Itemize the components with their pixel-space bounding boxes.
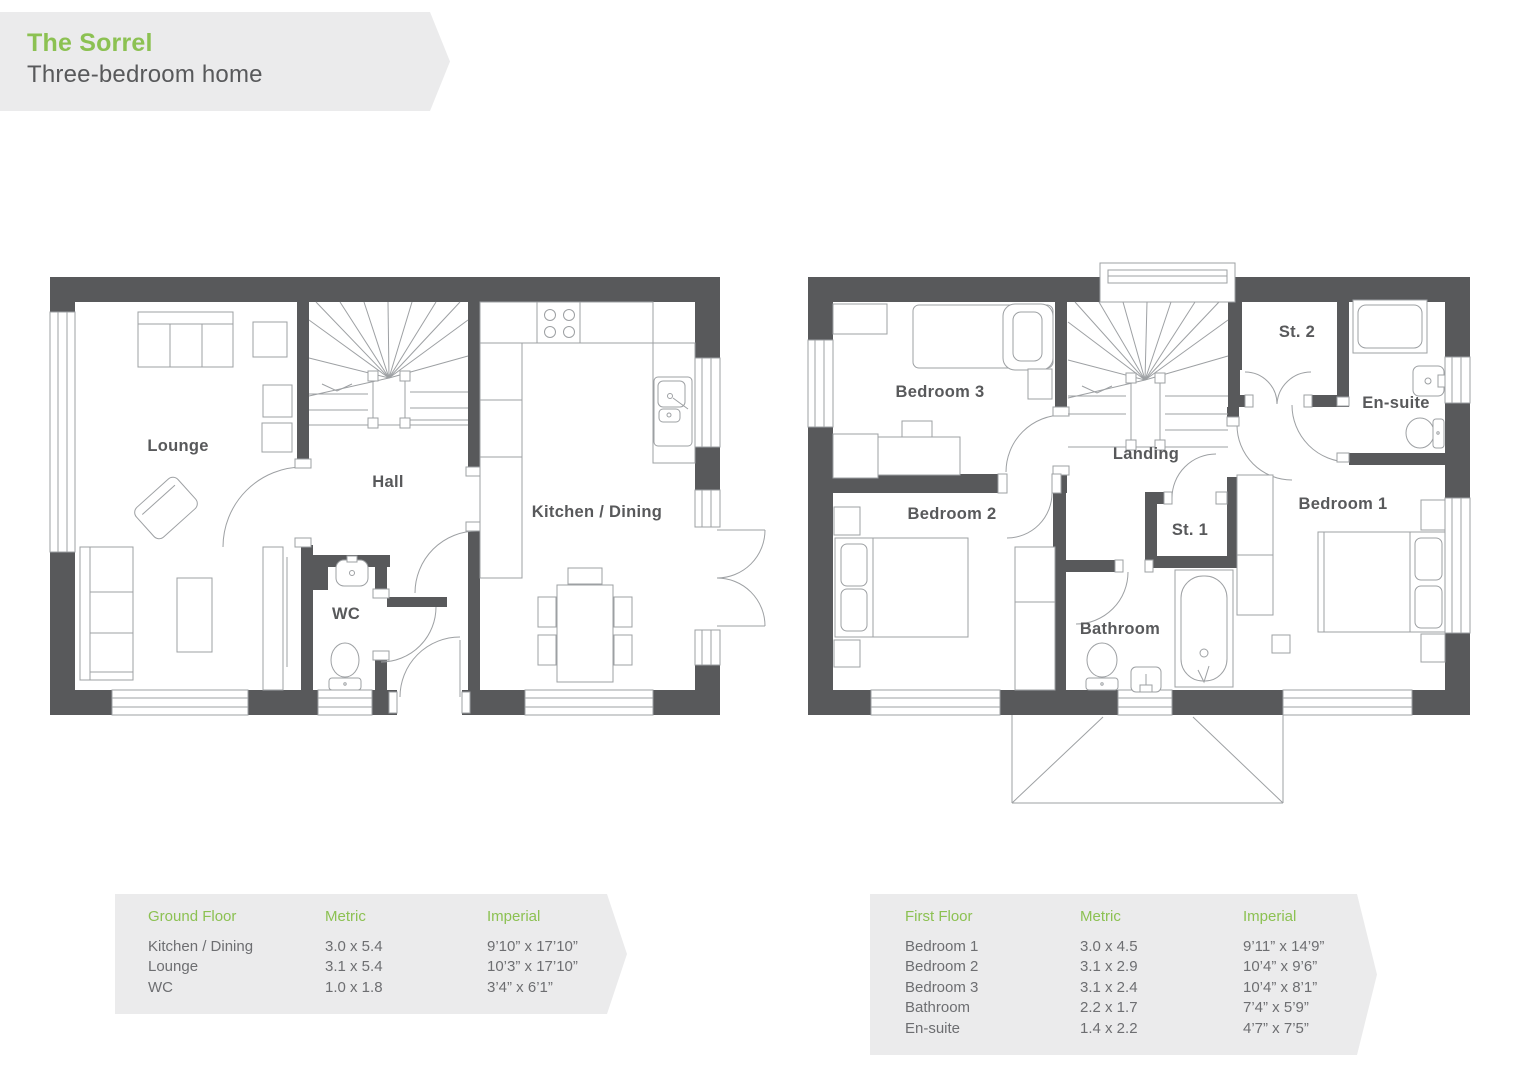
- chair: [614, 635, 632, 665]
- room-label-bedroom3: Bedroom 3: [896, 383, 985, 401]
- bathtub: [1175, 570, 1233, 687]
- imperial-cell: 9’11” x 14’9”: [1243, 937, 1377, 958]
- bedroom3-door-arc: [1006, 415, 1063, 472]
- room-cell: Bedroom 1: [905, 937, 1080, 958]
- hob: [537, 302, 580, 343]
- coffee-table: [177, 578, 212, 652]
- metric-cell: 2.2 x 1.7: [1080, 998, 1243, 1019]
- dining-table: [557, 585, 613, 682]
- metric-cell: 1.4 x 2.2: [1080, 1019, 1243, 1040]
- window: [871, 690, 1000, 715]
- imperial-cell: 7’4” x 5’9”: [1243, 998, 1377, 1019]
- desk: [878, 437, 960, 475]
- imperial-cell: 4’7” x 7’5”: [1243, 1019, 1377, 1040]
- room-cell: Bedroom 2: [905, 957, 1080, 978]
- metric-cell: 3.1 x 2.9: [1080, 957, 1243, 978]
- ensuite-fixtures: [1353, 300, 1445, 448]
- metric-cell: 1.0 x 1.8: [325, 978, 487, 999]
- desk-chair: [902, 421, 932, 438]
- kitchen-unit: [480, 400, 522, 457]
- toilet: [1406, 418, 1444, 448]
- room-label-ensuite: En-suite: [1362, 394, 1430, 412]
- imperial-cell: 10’4” x 8’1”: [1243, 978, 1377, 999]
- table-row: Bathroom 2.2 x 1.7 7’4” x 5’9”: [870, 998, 1377, 1019]
- room-label-bedroom1: Bedroom 1: [1299, 495, 1388, 513]
- metric-cell: 3.1 x 2.4: [1080, 978, 1243, 999]
- window: [112, 690, 248, 715]
- table-title: First Floor: [905, 907, 1080, 928]
- tv-unit: [263, 547, 287, 690]
- metric-header: Metric: [1080, 907, 1243, 928]
- french-door-arc: [717, 578, 765, 626]
- closet: [1015, 547, 1055, 602]
- window: [695, 490, 720, 527]
- window: [1283, 690, 1412, 715]
- window: [525, 690, 653, 715]
- bedroom1-door-arc: [1237, 425, 1292, 480]
- wardrobe: [1237, 475, 1273, 555]
- metric-cell: 3.1 x 5.4: [325, 957, 487, 978]
- room-label-wc: WC: [332, 605, 360, 623]
- toilet: [1086, 643, 1118, 690]
- table-row: Bedroom 1 3.0 x 4.5 9’11” x 14’9”: [870, 937, 1377, 958]
- room-label-lounge: Lounge: [147, 437, 208, 455]
- imperial-cell: 3’4” x 6’1”: [487, 978, 627, 999]
- armchair: [132, 474, 200, 541]
- table-row: WC 1.0 x 1.8 3’4” x 6’1”: [115, 978, 627, 999]
- room-cell: En-suite: [905, 1019, 1080, 1040]
- wardrobe: [1237, 555, 1273, 615]
- single-bed: [913, 304, 1053, 370]
- stair-dormer-window: [1100, 263, 1235, 302]
- bathroom-door-arc: [1076, 572, 1128, 624]
- double-bed: [1318, 532, 1445, 632]
- room-cell: Lounge: [148, 957, 325, 978]
- toilet: [329, 643, 361, 690]
- window: [1445, 357, 1470, 403]
- metric-header: Metric: [325, 907, 487, 928]
- imperial-cell: 9’10” x 17’10”: [487, 937, 627, 958]
- bedside-table: [834, 507, 860, 535]
- ground-floor-stairs: [309, 302, 468, 428]
- window: [1118, 690, 1172, 715]
- room-cell: Kitchen / Dining: [148, 937, 325, 958]
- window: [50, 312, 75, 552]
- front-door-arc: [400, 637, 460, 697]
- window: [1445, 498, 1470, 633]
- sink: [336, 556, 368, 586]
- imperial-header: Imperial: [487, 907, 627, 928]
- roof-outline: [1012, 715, 1283, 803]
- ground-floor-plan: Lounge Hall Kitchen / Dining WC: [50, 277, 765, 715]
- room-cell: Bedroom 3: [905, 978, 1080, 999]
- table-row: Bedroom 2 3.1 x 2.9 10’4” x 9’6”: [870, 957, 1377, 978]
- bedroom2-door-arc: [1007, 493, 1052, 538]
- table-row: Lounge 3.1 x 5.4 10’3” x 17’10”: [115, 957, 627, 978]
- lounge-furniture: [80, 312, 292, 690]
- bedside-table: [834, 640, 860, 667]
- imperial-cell: 10’4” x 9’6”: [1243, 957, 1377, 978]
- bedroom2-furniture: [834, 507, 1055, 690]
- chair: [568, 568, 602, 584]
- room-label-kitchen-dining: Kitchen / Dining: [532, 503, 662, 521]
- room-cell: Bathroom: [905, 998, 1080, 1019]
- chair: [614, 597, 632, 627]
- wardrobe: [1015, 602, 1055, 690]
- side-table: [263, 385, 292, 417]
- kitchen-sink: [654, 377, 692, 446]
- kitchen-fittings: [480, 302, 695, 682]
- side-table: [253, 322, 287, 357]
- table-header-row: Ground Floor Metric Imperial: [115, 907, 627, 928]
- window: [695, 358, 720, 447]
- window: [695, 630, 720, 665]
- table-title: Ground Floor: [148, 907, 325, 928]
- room-label-st2: St. 2: [1279, 323, 1315, 341]
- table-row: En-suite 1.4 x 2.2 4’7” x 7’5”: [870, 1019, 1377, 1040]
- room-cell: WC: [148, 978, 325, 999]
- room-label-st1: St. 1: [1172, 521, 1208, 539]
- bedside-table: [1421, 634, 1445, 662]
- cabinet: [833, 304, 887, 334]
- kitchen-unit: [480, 457, 522, 578]
- chair: [538, 597, 556, 627]
- imperial-header: Imperial: [1243, 907, 1377, 928]
- kitchen-unit: [480, 343, 522, 400]
- ground-floor-table: Ground Floor Metric Imperial Kitchen / D…: [115, 894, 627, 1014]
- sink: [1413, 366, 1445, 396]
- first-floor-table: First Floor Metric Imperial Bedroom 1 3.…: [870, 894, 1377, 1055]
- room-label-landing: Landing: [1113, 445, 1179, 463]
- table-row: Kitchen / Dining 3.0 x 5.4 9’10” x 17’10…: [115, 937, 627, 958]
- sink: [1131, 667, 1161, 692]
- side-table: [262, 423, 292, 452]
- chair: [538, 635, 556, 665]
- table-header-row: First Floor Metric Imperial: [870, 907, 1377, 928]
- sofa: [80, 547, 133, 680]
- bedside-table: [1421, 500, 1445, 530]
- wc-fixtures: [329, 556, 368, 690]
- double-bed: [835, 538, 968, 637]
- lounge-door-arc: [223, 467, 303, 547]
- sofa: [138, 312, 233, 367]
- metric-cell: 3.0 x 5.4: [325, 937, 487, 958]
- imperial-cell: 10’3” x 17’10”: [487, 957, 627, 978]
- table-row: Bedroom 3 3.1 x 2.4 10’4” x 8’1”: [870, 978, 1377, 999]
- first-floor-stairs: [1068, 302, 1228, 450]
- metric-cell: 3.0 x 4.5: [1080, 937, 1243, 958]
- dining-set: [538, 568, 632, 682]
- first-floor-plan: Bedroom 3 Bedroom 2 Landing St. 1 St. 2 …: [808, 263, 1470, 803]
- kitchen-door-arc: [415, 531, 477, 593]
- room-label-bathroom: Bathroom: [1080, 620, 1160, 638]
- cabinet: [833, 434, 878, 478]
- room-label-hall: Hall: [372, 473, 403, 491]
- side-unit: [1028, 369, 1052, 399]
- shower: [1353, 300, 1427, 353]
- french-door-arc: [717, 530, 765, 578]
- room-label-bedroom2: Bedroom 2: [908, 505, 997, 523]
- window: [318, 690, 372, 715]
- window: [808, 340, 833, 427]
- floorplan-page: { "header": { "title": "The Sorrel", "su…: [0, 0, 1527, 1080]
- side-unit: [1272, 635, 1290, 653]
